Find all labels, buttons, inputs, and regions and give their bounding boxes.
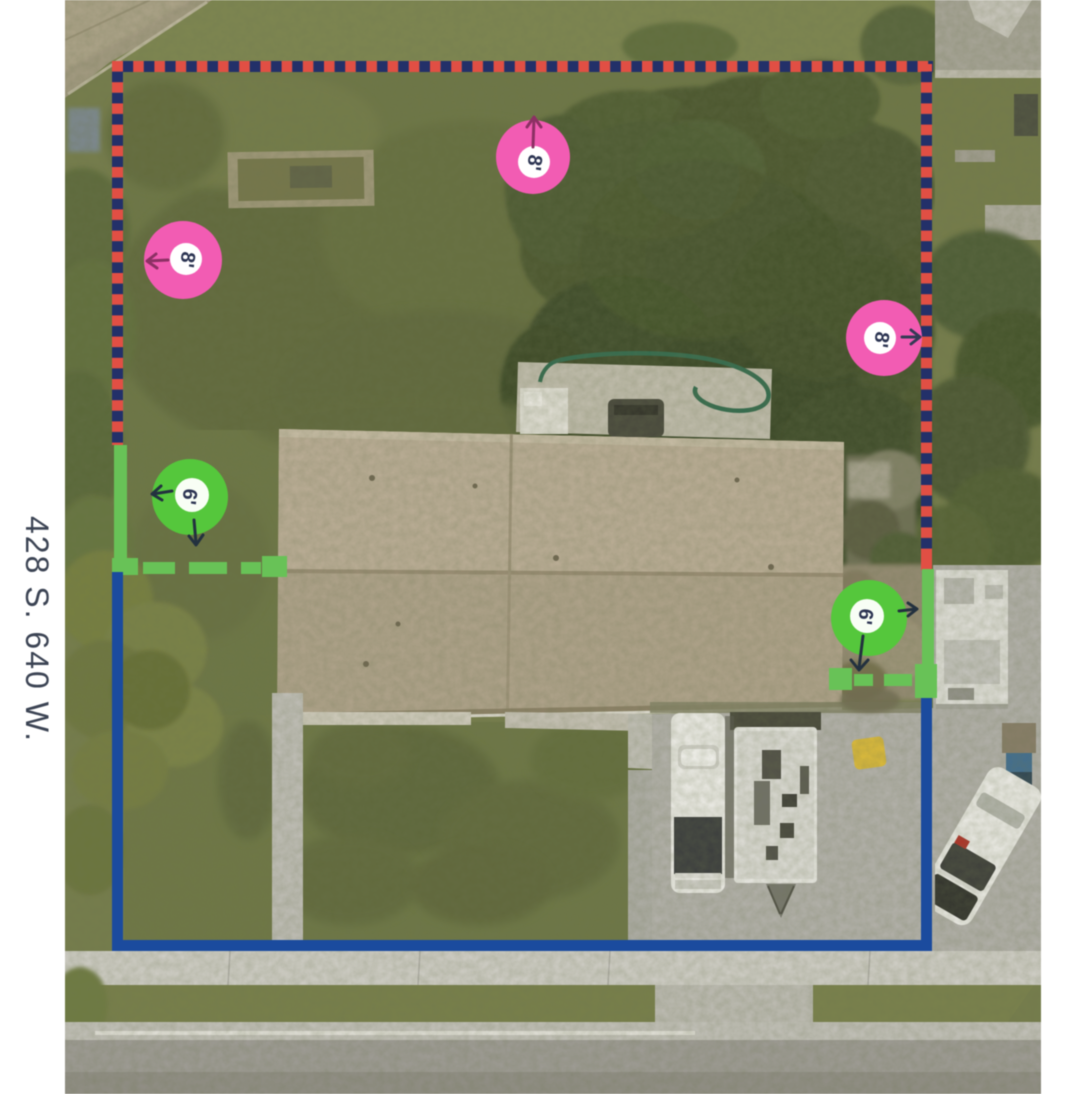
svg-text:428 S. 640 W.: 428 S. 640 W.	[19, 516, 55, 743]
svg-text:6': 6'	[177, 487, 201, 505]
svg-text:8': 8'	[175, 250, 199, 268]
svg-text:6': 6'	[853, 607, 877, 625]
svg-text:8': 8'	[869, 330, 893, 348]
svg-text:8': 8'	[522, 153, 546, 171]
